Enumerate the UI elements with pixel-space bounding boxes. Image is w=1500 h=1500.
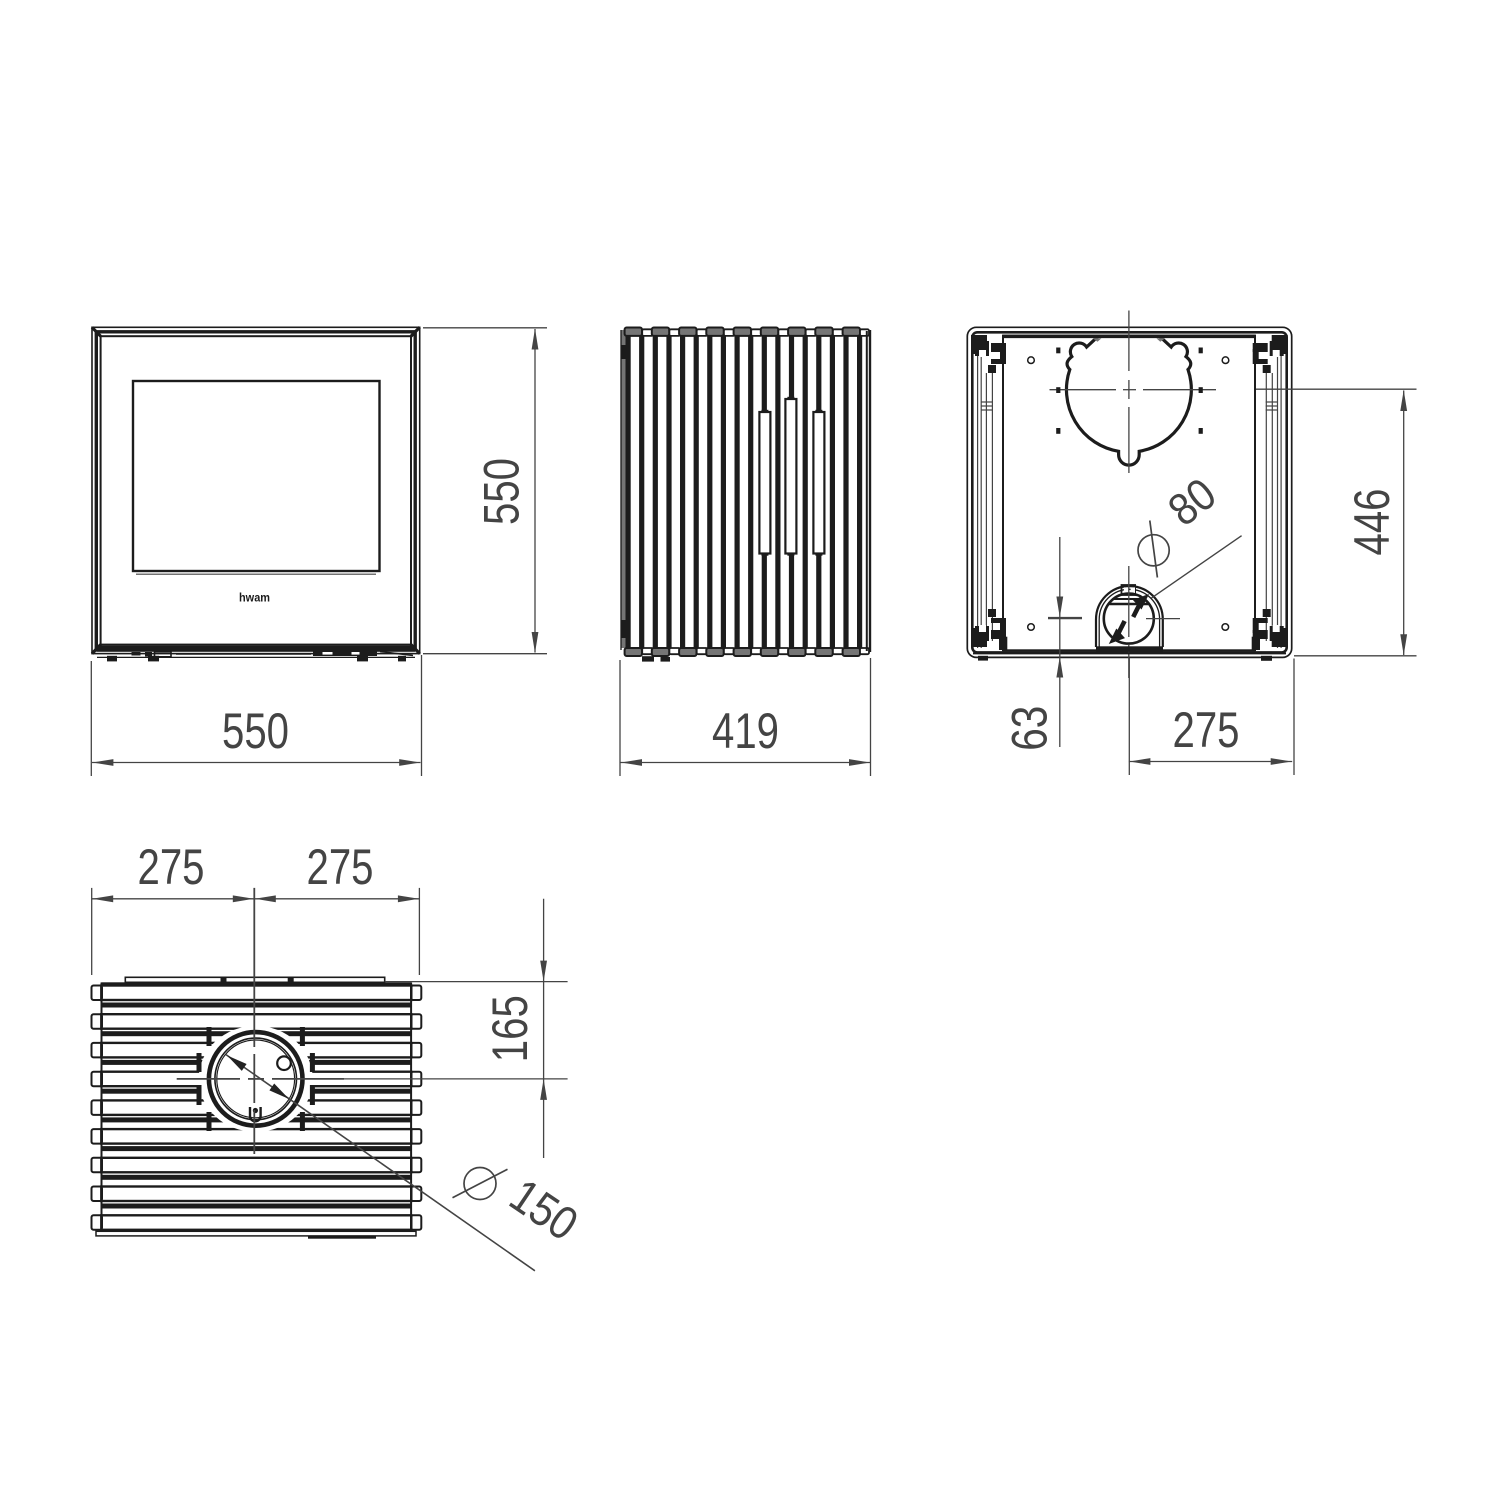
svg-text:165: 165	[481, 995, 538, 1062]
svg-text:550: 550	[472, 458, 529, 525]
svg-text:hwam: hwam	[239, 593, 270, 605]
svg-text:275: 275	[1173, 701, 1240, 758]
svg-text:446: 446	[1343, 489, 1400, 556]
svg-text:550: 550	[222, 702, 289, 759]
svg-text:63: 63	[1001, 706, 1058, 751]
svg-text:275: 275	[138, 838, 205, 895]
svg-text:275: 275	[307, 838, 374, 895]
svg-text:419: 419	[712, 702, 779, 759]
